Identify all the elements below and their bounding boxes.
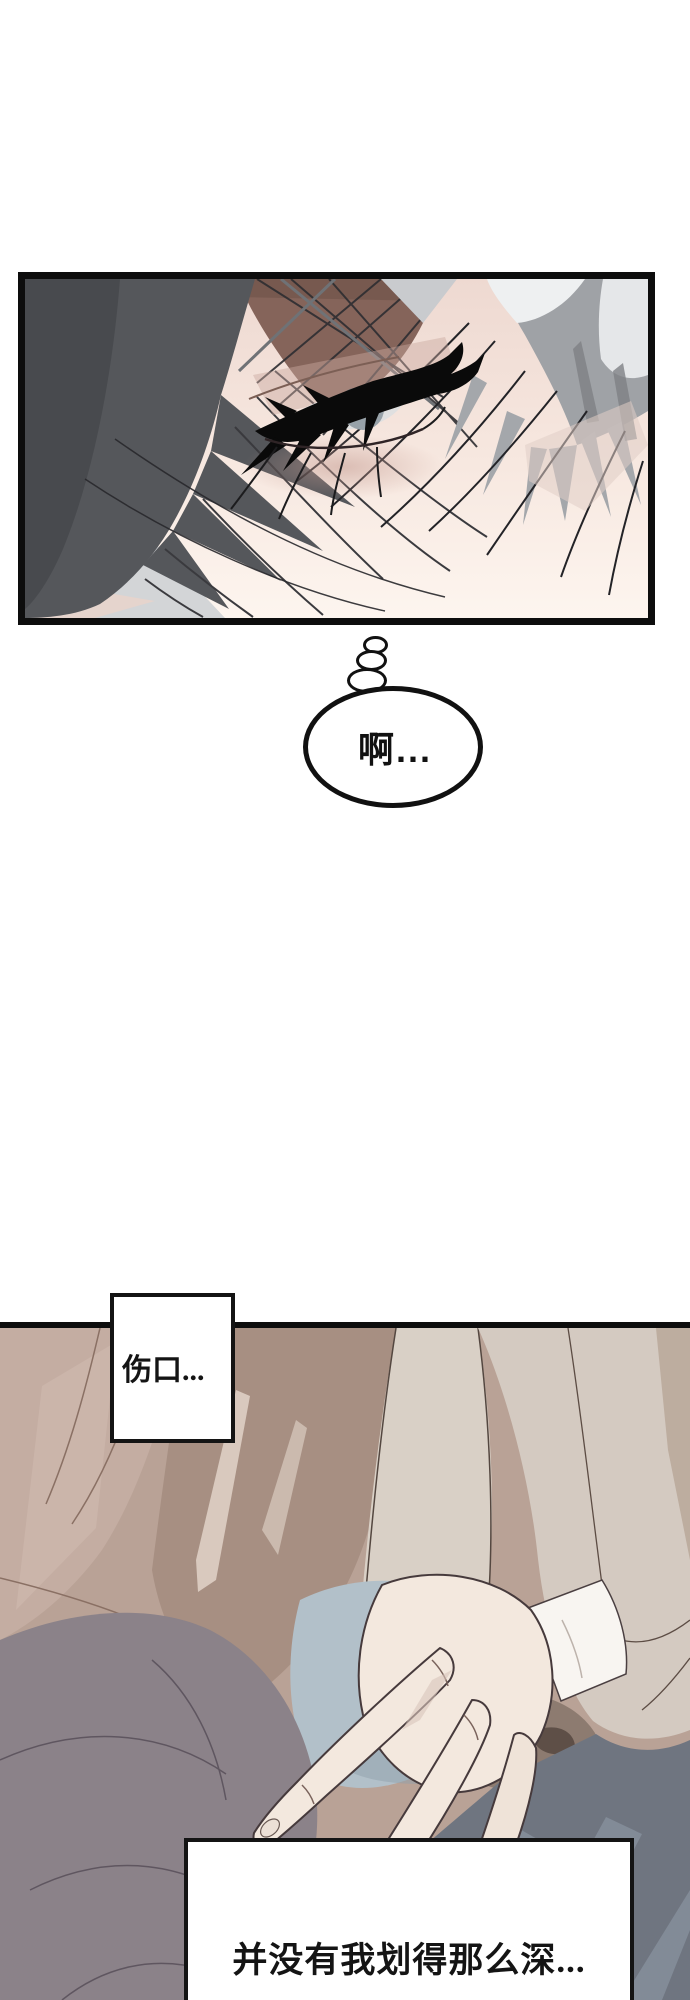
thought-bubble: 啊... — [303, 686, 483, 808]
panel-eye — [18, 272, 655, 625]
comic-page: 啊... — [0, 0, 690, 2000]
caption-depth-text: 并没有我划得那么深... — [232, 1932, 585, 2000]
eye-panel-art — [25, 279, 648, 618]
caption-box-depth: 并没有我划得那么深... — [184, 1838, 634, 2000]
caption-box-wound: 伤口... — [110, 1293, 235, 1443]
caption-wound-text: 伤口... — [122, 1345, 205, 1389]
thought-bubble-text: 啊... — [354, 721, 432, 773]
